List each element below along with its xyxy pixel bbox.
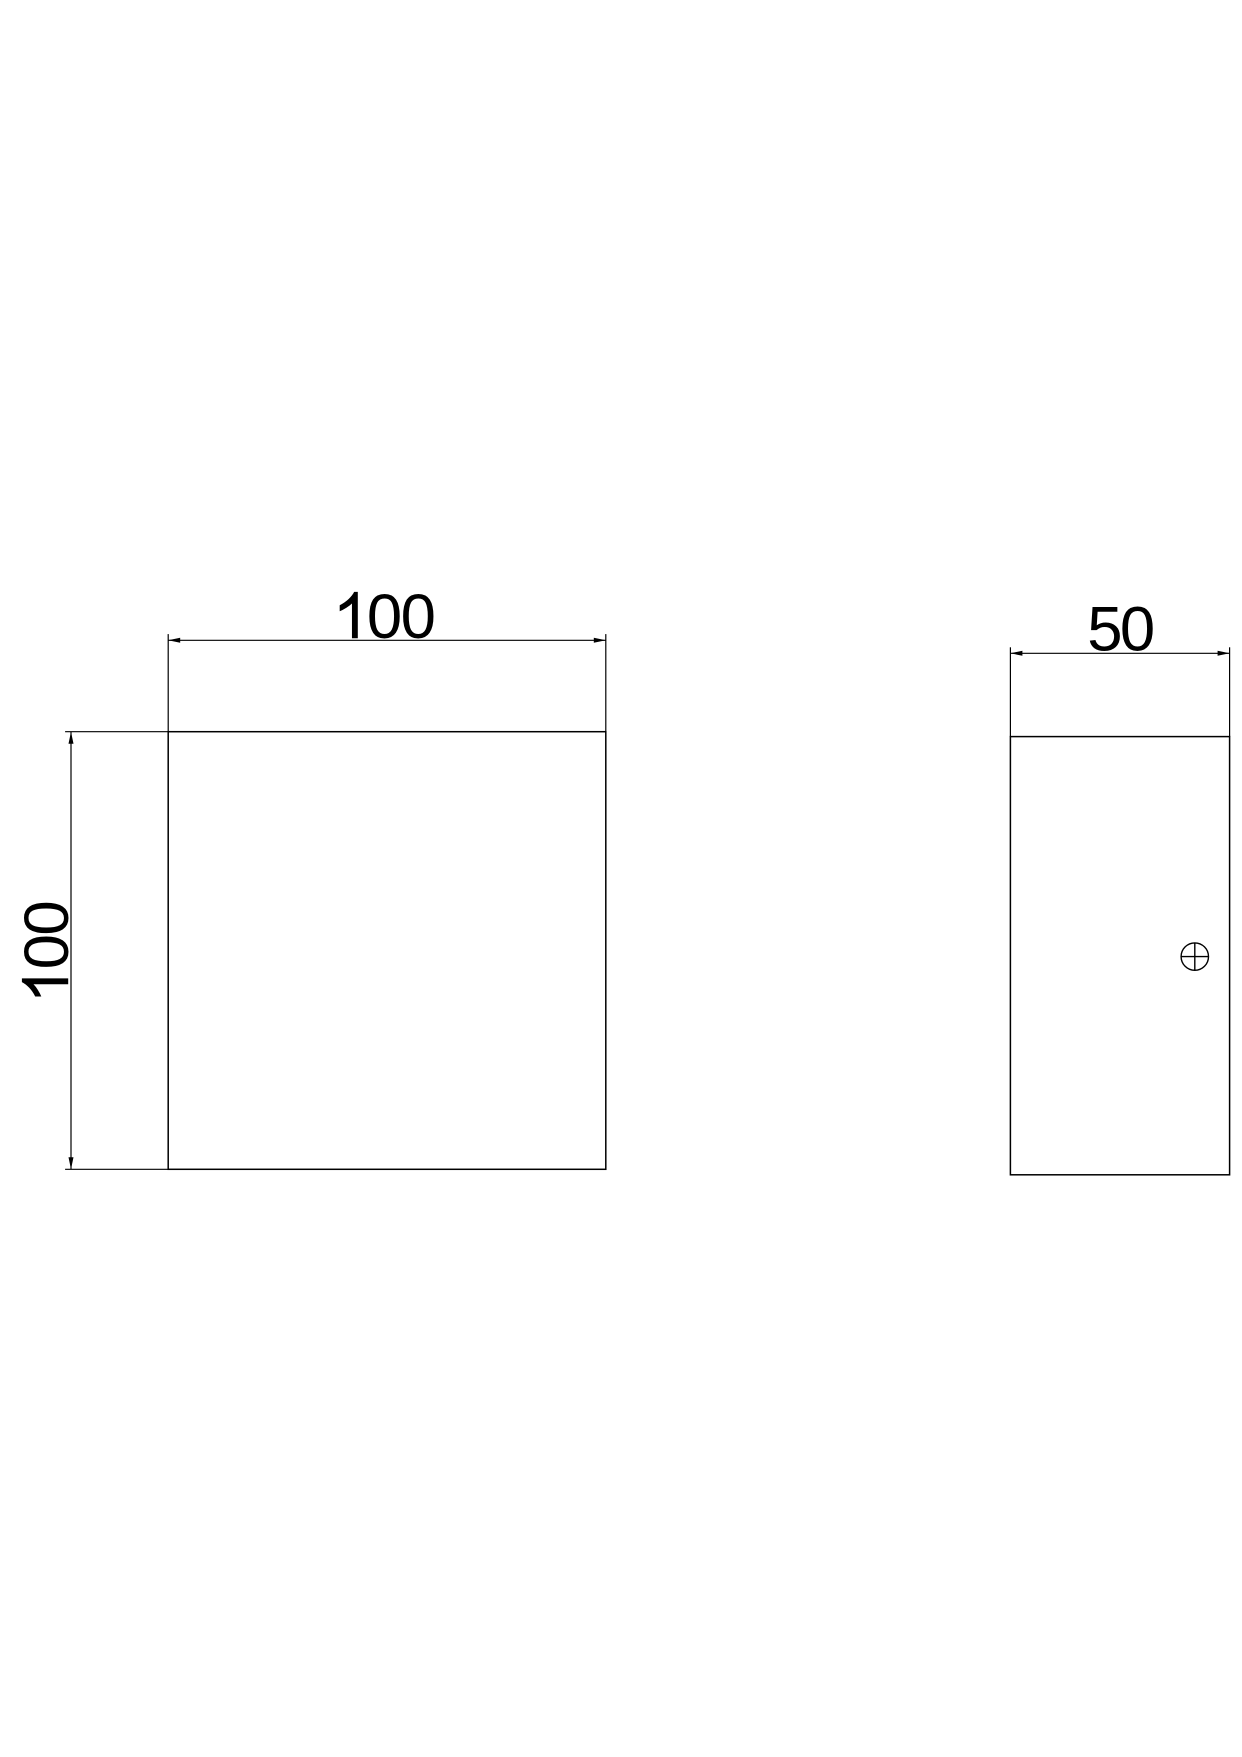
svg-text:5: 5 (1087, 594, 1122, 664)
svg-text:0: 0 (1120, 594, 1155, 664)
svg-text:0: 0 (367, 582, 402, 652)
svg-text:0: 0 (12, 934, 82, 969)
svg-text:0: 0 (401, 582, 436, 652)
svg-text:0: 0 (12, 900, 82, 935)
